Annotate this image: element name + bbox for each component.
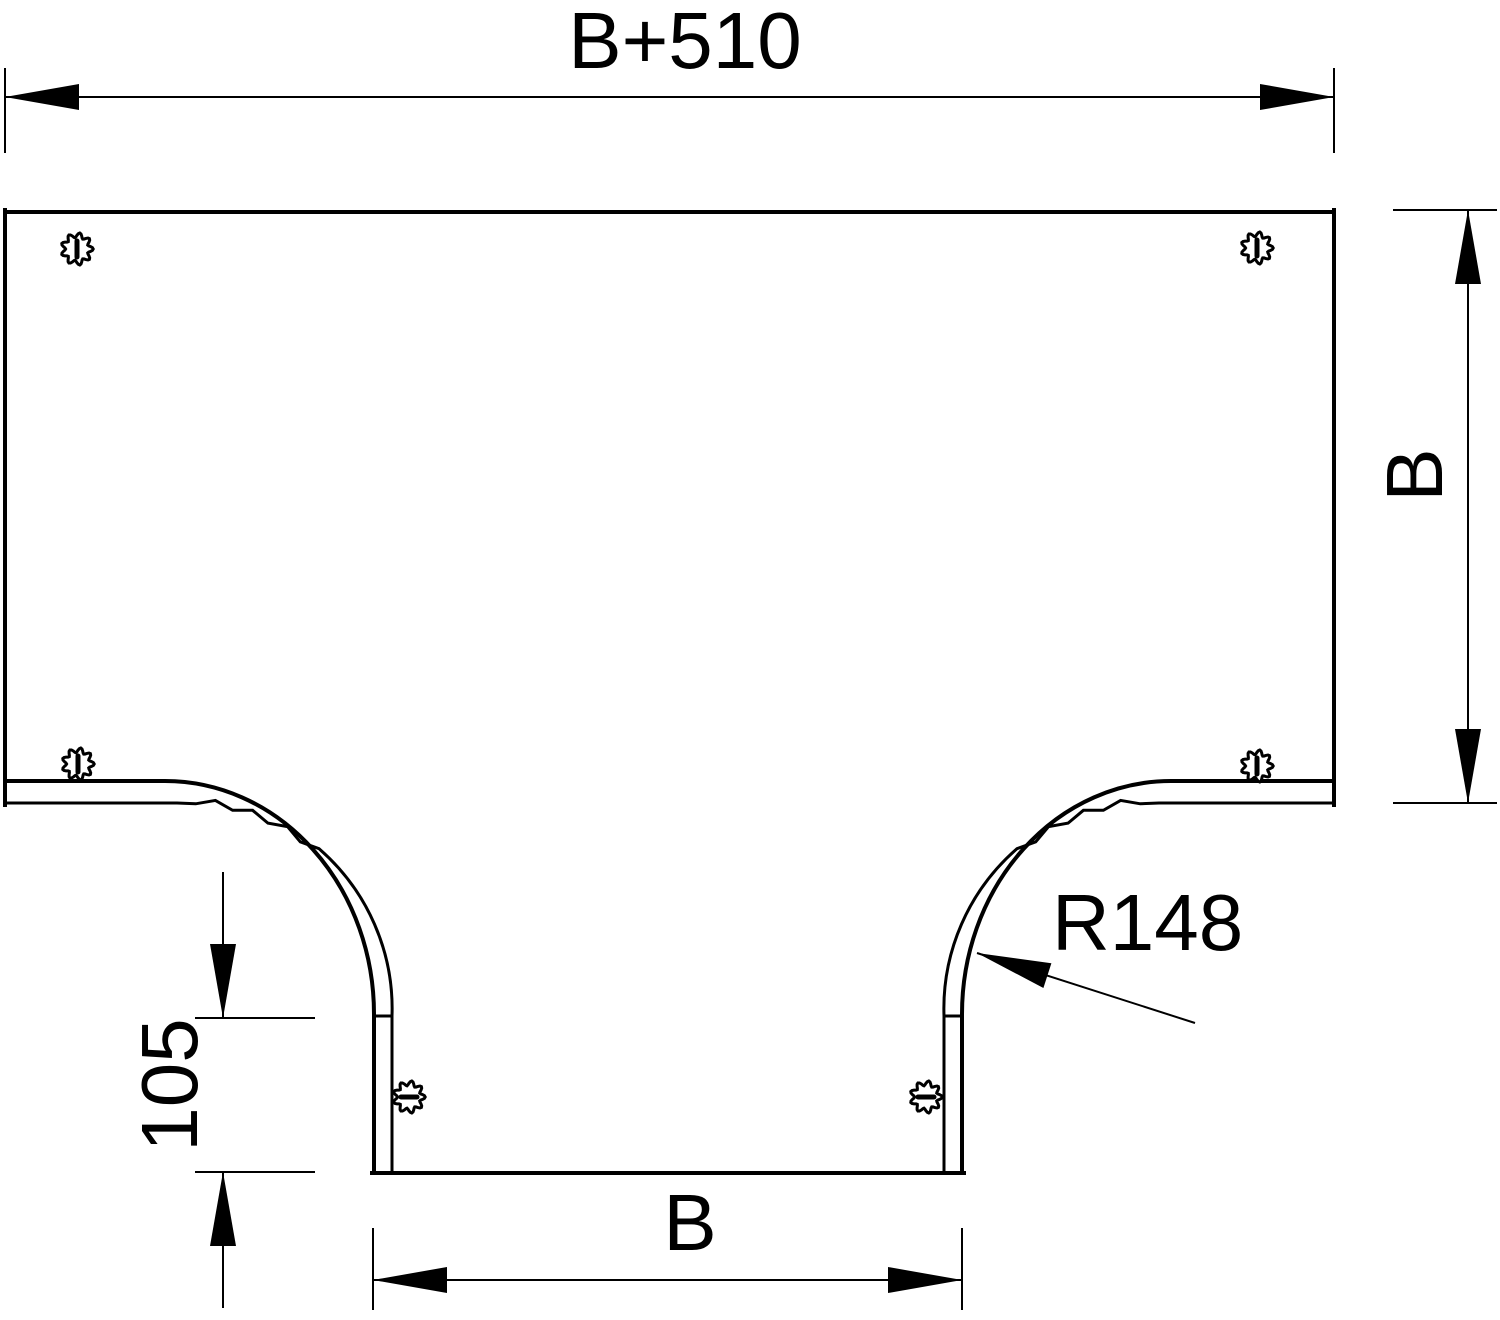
screw-slot <box>916 1095 937 1100</box>
dimension-branch-width: B <box>373 1178 962 1310</box>
screw-head-icon <box>63 748 94 780</box>
screw-slot <box>1255 238 1260 259</box>
screw-head-icon <box>394 1081 425 1113</box>
arrowhead-right <box>888 1267 962 1293</box>
arrowhead-down <box>210 944 236 1018</box>
dimension-label-flange-offset: 105 <box>125 1018 214 1151</box>
dimension-flange-offset: 105 <box>125 872 315 1308</box>
radius-label: R148 <box>1052 878 1243 967</box>
arrowhead-left <box>373 1267 447 1293</box>
screw-slot <box>1255 756 1260 777</box>
screw-slot <box>76 754 81 775</box>
right-flange-and-outer-bend <box>962 781 1334 1173</box>
leader-arrowhead <box>977 953 1051 988</box>
right-inner-bend-crimped <box>944 800 1334 1173</box>
radius-callout: R148 <box>977 878 1243 1023</box>
dimension-depth-right: B <box>1370 210 1497 803</box>
dimension-label-overall-width: B+510 <box>568 0 802 85</box>
drawing-canvas: B+510 B B 105 <box>0 0 1500 1320</box>
arrowhead-down <box>1455 729 1481 803</box>
dimension-label-branch-width: B <box>663 1178 716 1267</box>
arrowhead-up <box>1455 210 1481 284</box>
screw-slot <box>399 1095 420 1100</box>
fastener-screws <box>62 232 1273 1113</box>
arrowhead-left <box>5 84 79 110</box>
arrowhead-up <box>210 1172 236 1246</box>
screw-head-icon <box>62 233 93 265</box>
screw-head-icon <box>911 1081 942 1113</box>
dimension-label-depth: B <box>1370 448 1459 501</box>
screw-head-icon <box>1242 750 1273 782</box>
arrowhead-right <box>1260 84 1334 110</box>
dimension-overall-width: B+510 <box>5 0 1334 153</box>
screw-head-icon <box>1242 232 1273 264</box>
screw-slot <box>75 239 80 260</box>
technical-drawing-t-piece-cover: B+510 B B 105 <box>0 0 1500 1320</box>
